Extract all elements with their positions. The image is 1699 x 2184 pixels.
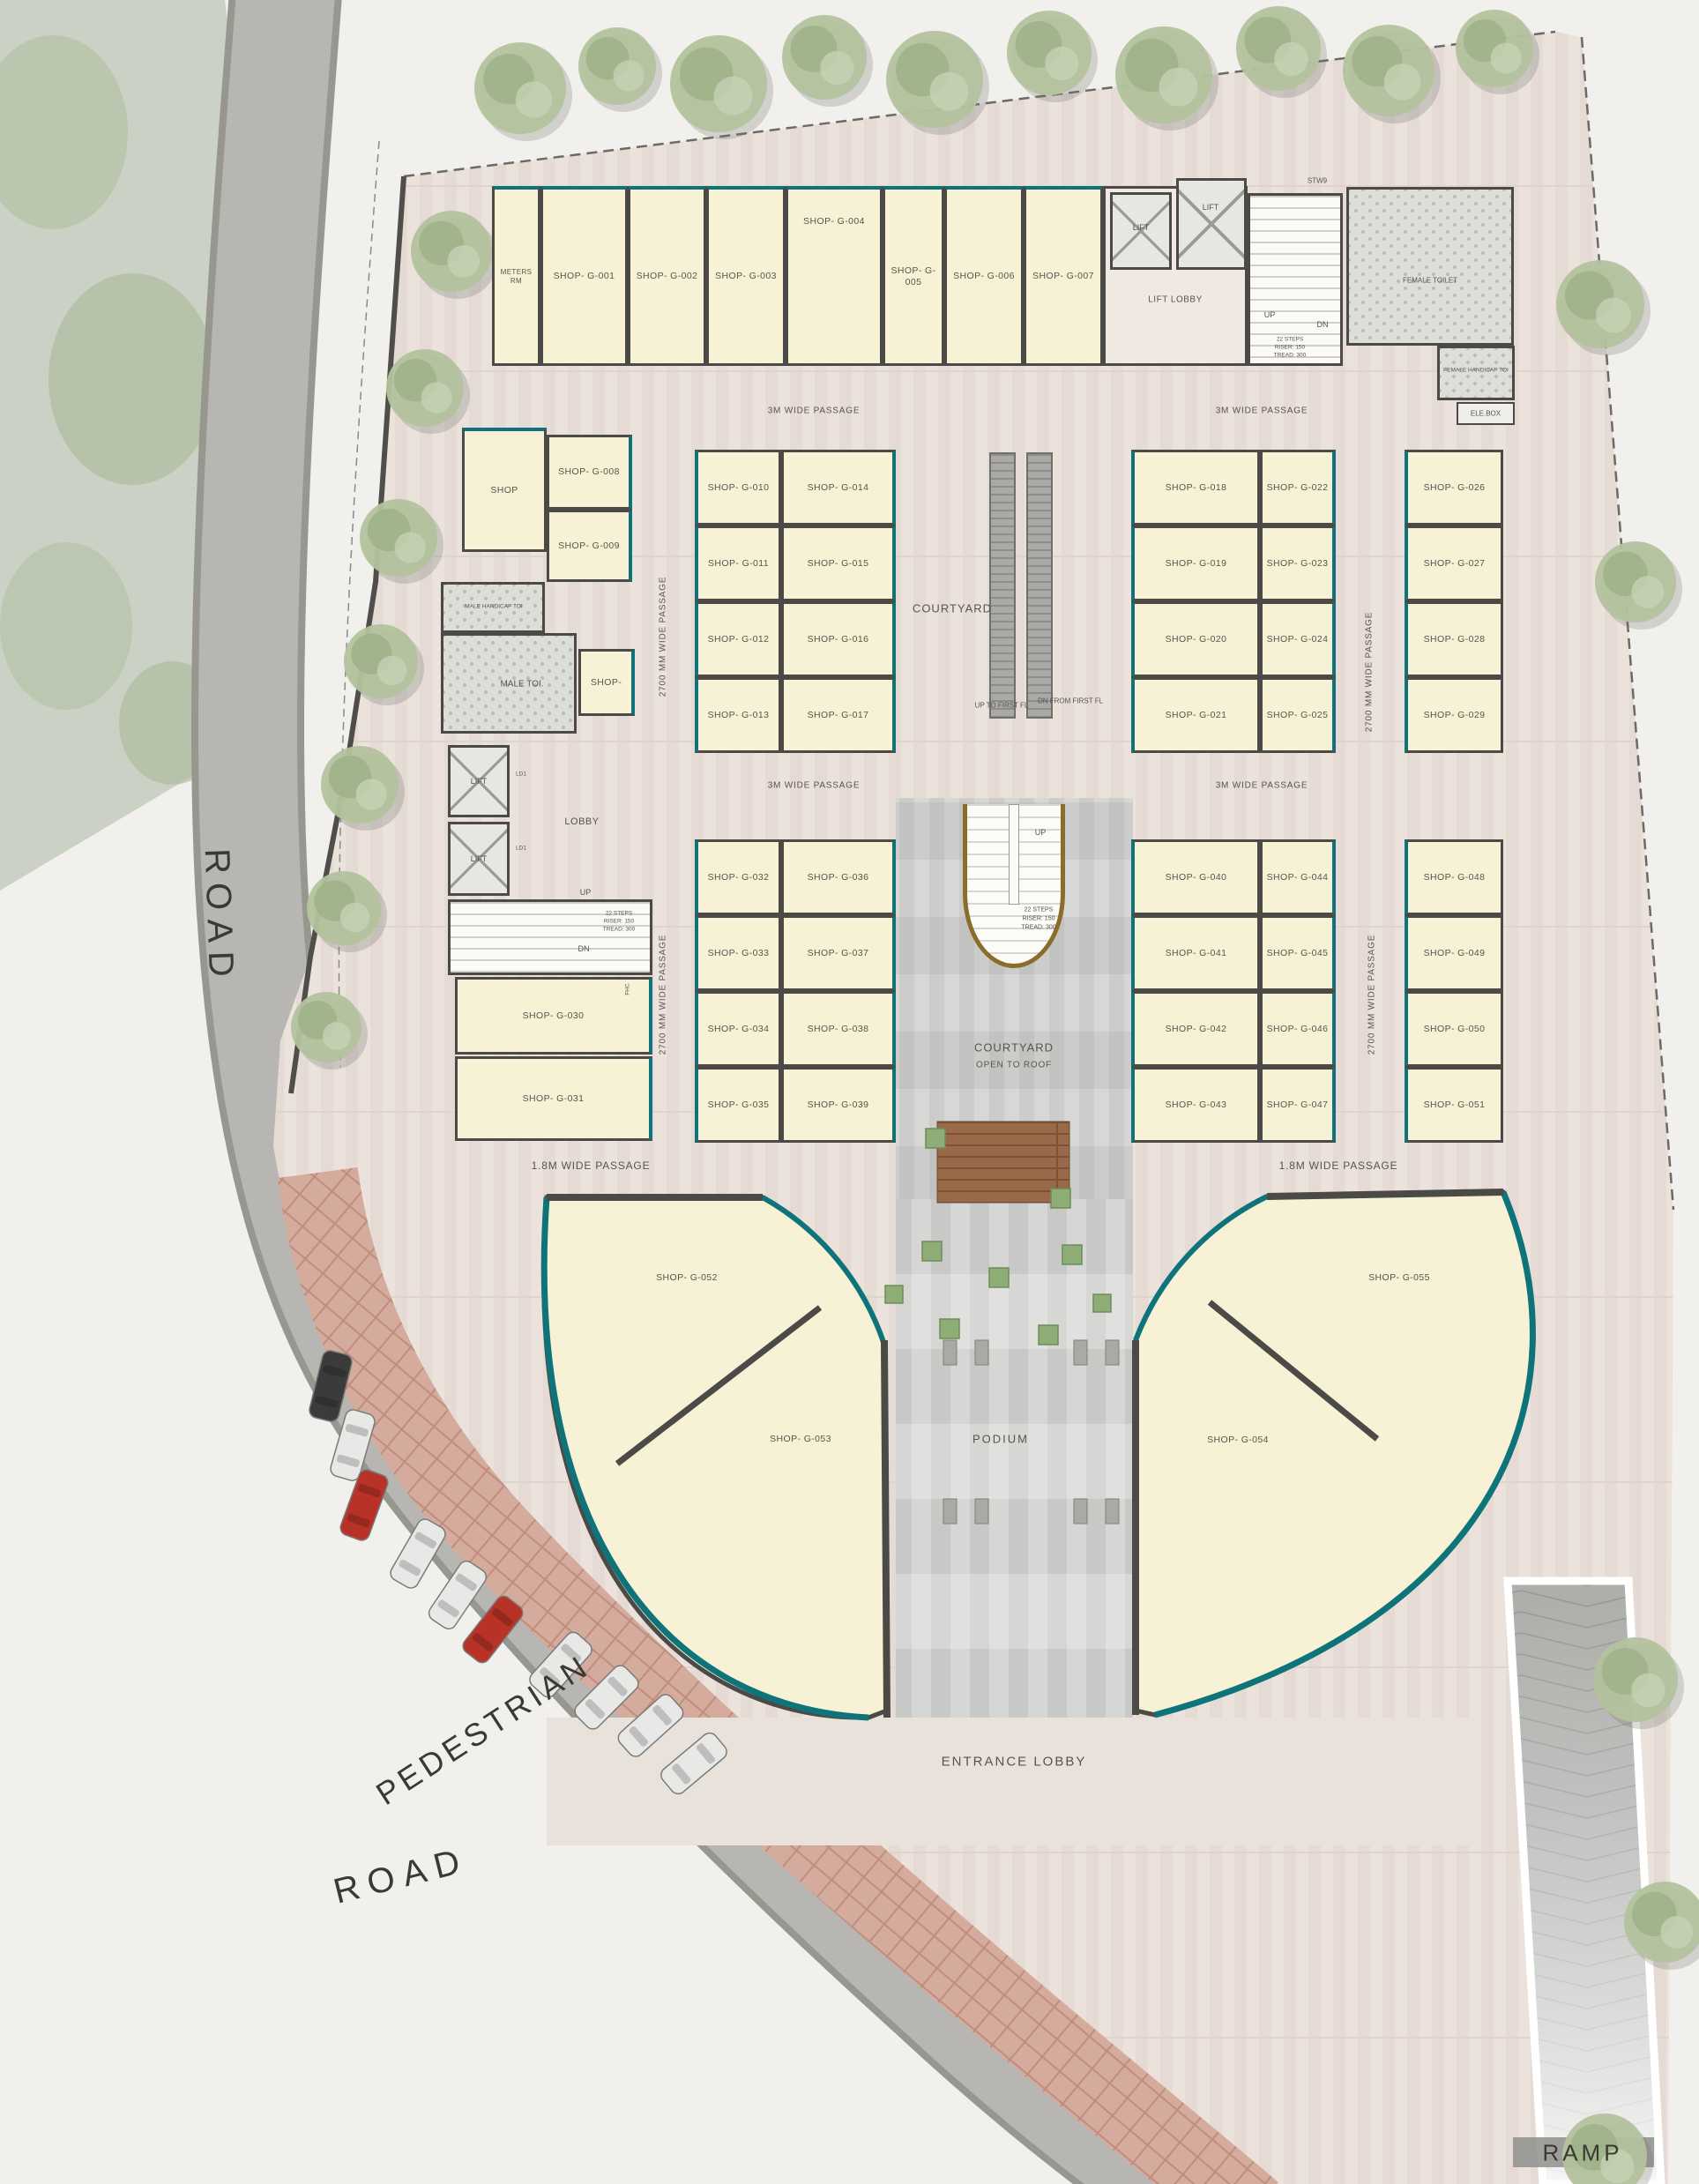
room-g021: SHOP- G-021	[1131, 677, 1260, 753]
room-g035-label: SHOP- G-035	[708, 1099, 770, 1111]
g052-label: SHOP- G-052	[656, 1272, 718, 1283]
ld1-label: LD1	[516, 846, 526, 852]
room-g032: SHOP- G-032	[695, 839, 781, 915]
p18m-label: 1.8M WIDE PASSAGE	[532, 1159, 651, 1172]
g055-label: SHOP- G-055	[1368, 1272, 1430, 1283]
room-g044: SHOP- G-044	[1260, 839, 1336, 915]
up-label: UP	[1264, 310, 1276, 319]
room-g015-label: SHOP- G-015	[808, 558, 869, 570]
room-g011-label: SHOP- G-011	[708, 558, 769, 570]
room-g046: SHOP- G-046	[1260, 991, 1336, 1067]
room-g013: SHOP- G-013	[695, 677, 781, 753]
room-g050-label: SHOP- G-050	[1424, 1024, 1486, 1035]
room-g028-label: SHOP- G-028	[1424, 634, 1486, 645]
tree-icon	[1007, 11, 1098, 102]
dn-label: DN	[578, 944, 590, 953]
room-g046-label: SHOP- G-046	[1267, 1024, 1329, 1035]
steps-l2-label: RISER: 150	[1275, 345, 1305, 351]
lift-lobby-label: LIFT LOBBY	[1148, 295, 1203, 305]
room-g047-label: SHOP- G-047	[1267, 1099, 1329, 1111]
room-g041: SHOP- G-041	[1131, 915, 1260, 991]
room-g001-label: SHOP- G-001	[554, 271, 615, 282]
room-g025-label: SHOP- G-025	[1267, 710, 1329, 721]
dn-from-first-label: DN FROM FIRST FL	[1038, 697, 1103, 705]
steps-l2-label: RISER: 150	[604, 919, 634, 925]
room-g024-label: SHOP- G-024	[1267, 634, 1329, 645]
room-g022-label: SHOP- G-022	[1267, 482, 1329, 494]
room-g044-label: SHOP- G-044	[1267, 872, 1329, 883]
room-g002: SHOP- G-002	[628, 186, 706, 366]
room-g029: SHOP- G-029	[1405, 677, 1503, 753]
room-g005: SHOP- G-005	[883, 186, 944, 366]
room-g015: SHOP- G-015	[781, 526, 896, 601]
steps-l1-label: 22 STEPS	[606, 911, 632, 917]
p2700-label: 2700 MM WIDE PASSAGE	[659, 577, 668, 697]
room-g023-label: SHOP- G-023	[1267, 558, 1329, 570]
room-g014-label: SHOP- G-014	[808, 482, 869, 494]
steps-l3-label: TREAD: 300	[1274, 353, 1307, 359]
room-g027: SHOP- G-027	[1405, 526, 1503, 601]
room-g019-label: SHOP- G-019	[1166, 558, 1227, 570]
room-g032-label: SHOP- G-032	[708, 872, 770, 883]
room-shop: SHOP	[462, 428, 547, 552]
room-g039-label: SHOP- G-039	[808, 1099, 869, 1111]
fhc-label: FHC	[625, 983, 631, 995]
room-g002-label: SHOP- G-002	[637, 271, 698, 282]
room-g004: SHOP- G-004	[786, 186, 883, 366]
room-g034: SHOP- G-034	[695, 991, 781, 1067]
room-g012: SHOP- G-012	[695, 601, 781, 677]
stw9-label: STW9	[1308, 177, 1327, 185]
room-g020: SHOP- G-020	[1131, 601, 1260, 677]
room-g013-label: SHOP- G-013	[708, 710, 770, 721]
p2700-label: 2700 MM WIDE PASSAGE	[1365, 612, 1375, 732]
room-g036-label: SHOP- G-036	[808, 872, 869, 883]
room-g025: SHOP- G-025	[1260, 677, 1336, 753]
open-l2-label: OPEN TO ROOF	[976, 1061, 1052, 1070]
room-g042-label: SHOP- G-042	[1166, 1024, 1227, 1035]
room-g007-label: SHOP- G-007	[1032, 271, 1094, 282]
lift-2	[1176, 178, 1247, 270]
room-g026: SHOP- G-026	[1405, 450, 1503, 526]
room-g017-label: SHOP- G-017	[808, 710, 869, 721]
escalator-down	[1026, 452, 1053, 719]
p3m-label: 3M WIDE PASSAGE	[768, 781, 861, 791]
ele-box-label: ELE.BOX	[1471, 410, 1501, 418]
up-to-first-label: UP TO FIRST FL	[975, 702, 1029, 710]
steps-l1-label: 22 STEPS	[1277, 337, 1303, 343]
room-g007: SHOP- G-007	[1024, 186, 1103, 366]
room-g010: SHOP- G-010	[695, 450, 781, 526]
room-g051: SHOP- G-051	[1405, 1067, 1503, 1143]
room-g006: SHOP- G-006	[944, 186, 1024, 366]
room-g048-label: SHOP- G-048	[1424, 872, 1486, 883]
room-g009-label: SHOP- G-009	[558, 540, 620, 552]
room-g037: SHOP- G-037	[781, 915, 896, 991]
male-toi-label: MALE TOI.	[500, 680, 543, 689]
room-g042: SHOP- G-042	[1131, 991, 1260, 1067]
room-g023: SHOP- G-023	[1260, 526, 1336, 601]
podium-label: PODIUM	[972, 1433, 1029, 1446]
male-hc-toi-label: MALE HANDICAP TOI	[465, 604, 522, 610]
g053-label: SHOP- G-053	[770, 1434, 831, 1444]
p2700-label: 2700 MM WIDE PASSAGE	[1367, 935, 1377, 1055]
room-g040-label: SHOP- G-040	[1166, 872, 1227, 883]
p3m-label: 3M WIDE PASSAGE	[768, 406, 861, 416]
female-toilet	[1346, 187, 1514, 346]
courtyard-label: COURTYARD	[913, 602, 992, 615]
lift-label: LIFT	[471, 854, 488, 863]
room-g017: SHOP- G-017	[781, 677, 896, 753]
lift-label: LIFT	[1203, 203, 1219, 212]
p3m-label: 3M WIDE PASSAGE	[1216, 781, 1308, 791]
up-label: UP	[580, 888, 592, 897]
lobby-label: LOBBY	[564, 816, 599, 827]
room-g009: SHOP- G-009	[547, 510, 632, 582]
room-g048: SHOP- G-048	[1405, 839, 1503, 915]
ld1-label: LD1	[516, 771, 526, 778]
room-meters: METERS RM	[492, 186, 540, 366]
tree-icon	[782, 15, 873, 107]
ramp-label: RAMP	[1542, 2140, 1622, 2167]
room-g047: SHOP- G-047	[1260, 1067, 1336, 1143]
room-g010-label: SHOP- G-010	[708, 482, 770, 494]
p2700-label: 2700 MM WIDE PASSAGE	[659, 935, 668, 1055]
tree-icon	[578, 27, 662, 112]
room-g022: SHOP- G-022	[1260, 450, 1336, 526]
room-g018: SHOP- G-018	[1131, 450, 1260, 526]
room-shop-small: SHOP-	[578, 649, 635, 716]
road-top-label: ROAD	[197, 847, 241, 986]
steps-l2-label: RISER: 150	[1023, 916, 1055, 922]
room-g049: SHOP- G-049	[1405, 915, 1503, 991]
room-g038-label: SHOP- G-038	[808, 1024, 869, 1035]
room-shop-label: SHOP	[490, 485, 518, 496]
room-g024: SHOP- G-024	[1260, 601, 1336, 677]
entrance-lobby-label: ENTRANCE LOBBY	[942, 1755, 1087, 1770]
room-g011: SHOP- G-011	[695, 526, 781, 601]
room-g028: SHOP- G-028	[1405, 601, 1503, 677]
room-g018-label: SHOP- G-018	[1166, 482, 1227, 494]
room-g033: SHOP- G-033	[695, 915, 781, 991]
room-g026-label: SHOP- G-026	[1424, 482, 1486, 494]
up-label: UP	[1035, 828, 1047, 837]
room-g030-label: SHOP- G-030	[523, 1010, 585, 1022]
room-g031: SHOP- G-031	[455, 1056, 652, 1141]
podium-floor	[896, 1199, 1133, 1719]
room-g004-label: SHOP- G-004	[803, 216, 865, 227]
room-g003: SHOP- G-003	[706, 186, 786, 366]
courtyard-stair	[963, 804, 1065, 968]
room-g036: SHOP- G-036	[781, 839, 896, 915]
p3m-label: 3M WIDE PASSAGE	[1216, 406, 1308, 416]
escalator-up	[989, 452, 1016, 719]
dn-label: DN	[1317, 320, 1329, 329]
female-hc-toi-label: FEMALE HANDICAP TOI	[1443, 368, 1509, 374]
p18m-label: 1.8M WIDE PASSAGE	[1279, 1159, 1398, 1172]
room-g045: SHOP- G-045	[1260, 915, 1336, 991]
room-g021-label: SHOP- G-021	[1166, 710, 1227, 721]
steps-l3-label: TREAD: 300	[1021, 925, 1055, 931]
room-g014: SHOP- G-014	[781, 450, 896, 526]
room-g012-label: SHOP- G-012	[708, 634, 770, 645]
room-g029-label: SHOP- G-029	[1424, 710, 1486, 721]
room-g041-label: SHOP- G-041	[1166, 948, 1227, 959]
lift-label: LIFT	[471, 777, 488, 786]
room-shop-small-label: SHOP-	[591, 677, 622, 689]
room-g035: SHOP- G-035	[695, 1067, 781, 1143]
tree-icon	[670, 35, 773, 139]
open-l1-label: COURTYARD	[974, 1041, 1054, 1055]
steps-l1-label: 22 STEPS	[1025, 907, 1054, 913]
room-g030: SHOP- G-030	[455, 977, 652, 1055]
room-g039: SHOP- G-039	[781, 1067, 896, 1143]
room-g027-label: SHOP- G-027	[1424, 558, 1486, 570]
room-g043-label: SHOP- G-043	[1166, 1099, 1227, 1111]
room-g038: SHOP- G-038	[781, 991, 896, 1067]
room-g020-label: SHOP- G-020	[1166, 634, 1227, 645]
room-g016: SHOP- G-016	[781, 601, 896, 677]
room-g008-label: SHOP- G-008	[558, 466, 620, 478]
lift-label: LIFT	[1133, 223, 1150, 232]
g054-label: SHOP- G-054	[1207, 1435, 1269, 1445]
room-g050: SHOP- G-050	[1405, 991, 1503, 1067]
room-g008: SHOP- G-008	[547, 435, 632, 510]
room-g016-label: SHOP- G-016	[808, 634, 869, 645]
room-g019: SHOP- G-019	[1131, 526, 1260, 601]
room-g045-label: SHOP- G-045	[1267, 948, 1329, 959]
room-g040: SHOP- G-040	[1131, 839, 1260, 915]
room-g051-label: SHOP- G-051	[1424, 1099, 1486, 1111]
room-g037-label: SHOP- G-037	[808, 948, 869, 959]
floor-plan-canvas: METERS RMSHOP- G-001SHOP- G-002SHOP- G-0…	[0, 0, 1699, 2184]
room-g043: SHOP- G-043	[1131, 1067, 1260, 1143]
female-toilet-label: FEMALE TOILET	[1403, 277, 1457, 285]
room-g005-label: SHOP- G-005	[885, 265, 942, 287]
room-meters-label: METERS RM	[495, 268, 538, 285]
room-g031-label: SHOP- G-031	[523, 1093, 585, 1105]
room-g003-label: SHOP- G-003	[715, 271, 777, 282]
room-g001: SHOP- G-001	[540, 186, 628, 366]
steps-l3-label: TREAD: 300	[603, 927, 636, 933]
room-g034-label: SHOP- G-034	[708, 1024, 770, 1035]
room-g033-label: SHOP- G-033	[708, 948, 770, 959]
room-g006-label: SHOP- G-006	[953, 271, 1015, 282]
room-g049-label: SHOP- G-049	[1424, 948, 1486, 959]
tree-icon	[474, 42, 572, 141]
